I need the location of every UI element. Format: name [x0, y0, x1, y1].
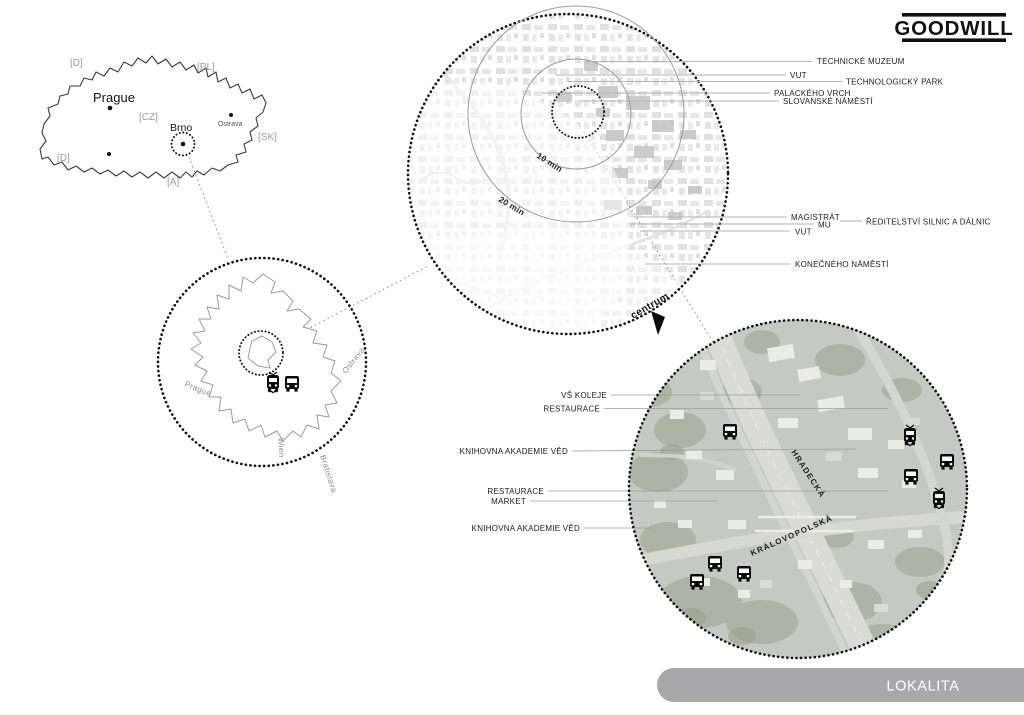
- czechia-label: [CZ]: [139, 112, 158, 123]
- brno-label: Brno: [170, 122, 192, 134]
- callout-knihovna-2: KNIHOVNA AKADEMIE VĚD: [472, 524, 580, 533]
- callout-konecneho-namesti: KONEČNÉHO NÁMĚSTÍ: [795, 260, 889, 269]
- callout-technologicky-park: TECHNOLOGICKÝ PARK: [846, 78, 944, 87]
- goodwill-logo: GOODWILL: [894, 13, 1013, 42]
- callout-vs-koleje: VŠ KOLEJE: [561, 391, 607, 400]
- callout-knihovna-1: KNIHOVNA AKADEMIE VĚD: [460, 447, 568, 456]
- direction-bratislava-label: Bratislava: [318, 454, 339, 494]
- brno-overview-circle: Prague Ostrava Wien Bratislava: [158, 258, 367, 494]
- satellite-callouts: VŠ KOLEJE RESTAURACE KNIHOVNA AKADEMIE V…: [460, 391, 607, 533]
- satellite-map-circle: HRADECKÁ KRÁLOVOPOLSKÁ VŠ KOLEJE: [460, 320, 969, 665]
- logo-bottom-bar: [902, 38, 1006, 42]
- callout-restaurace-2: RESTAURACE: [487, 487, 544, 496]
- callout-slovanske-namesti: SLOVANSKÉ NÁMĚSTÍ: [783, 97, 873, 106]
- callout-technicke-muzeum: TECHNICKÉ MUZEUM: [817, 57, 905, 66]
- direction-wien-label: Wien: [276, 438, 286, 458]
- logo-text: GOODWILL: [894, 17, 1013, 40]
- prague-dot: [108, 106, 113, 111]
- czech-republic-map: Prague Brno Ostrava [D] [PL] [CZ] [SK] […: [40, 56, 277, 188]
- callout-vut-2: VUT: [795, 228, 812, 237]
- ostrava-dot: [229, 113, 233, 117]
- ostrava-label: Ostrava: [218, 121, 243, 128]
- slovakia-label: [SK]: [258, 132, 277, 143]
- lokalita-banner: LOKALITA: [657, 668, 1024, 702]
- direction-ostrava-label: Ostrava: [340, 345, 366, 375]
- austria-label: [A]: [167, 177, 179, 188]
- callout-reditelstvi: ŘEDITELSTVÍ SILNIC A DÁLNIC: [866, 218, 991, 227]
- diagram-canvas: Prague Brno Ostrava [D] [PL] [CZ] [SK] […: [0, 0, 1024, 715]
- prague-label: Prague: [93, 90, 135, 105]
- callout-restaurace-1: RESTAURACE: [543, 405, 600, 414]
- callout-magistrat: MAGISTRÁT: [791, 213, 840, 222]
- centrum-arrow-icon: [651, 311, 665, 335]
- callout-vut-1: VUT: [790, 71, 807, 80]
- germany-label-top: [D]: [70, 58, 83, 69]
- city-dot: [107, 152, 111, 156]
- banner-background: [657, 668, 1024, 702]
- city-map-callouts: TECHNICKÉ MUZEUM VUT TECHNOLOGICKÝ PARK …: [774, 57, 991, 269]
- banner-title: LOKALITA: [886, 679, 959, 695]
- walkability-map-circle: 10 min 20 min centrum: [294, 6, 728, 400]
- brno-dot: [181, 142, 186, 147]
- callout-mu: MU: [818, 221, 831, 230]
- germany-label-bottom: [D]: [57, 153, 70, 164]
- location-analysis-page: Prague Brno Ostrava [D] [PL] [CZ] [SK] […: [0, 0, 1024, 715]
- poland-label: [PL]: [197, 62, 215, 73]
- callout-market: MARKET: [491, 497, 526, 506]
- satellite-photo: HRADECKÁ KRÁLOVOPOLSKÁ: [628, 320, 969, 665]
